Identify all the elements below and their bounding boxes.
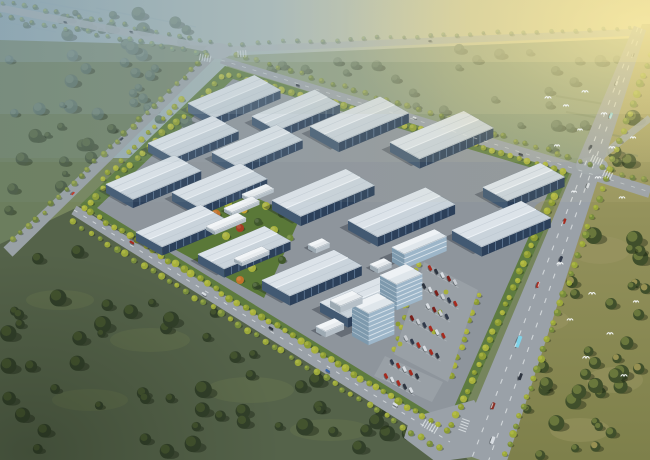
aerial-industrial-park-rendering	[0, 0, 650, 460]
scene-svg	[0, 0, 650, 460]
